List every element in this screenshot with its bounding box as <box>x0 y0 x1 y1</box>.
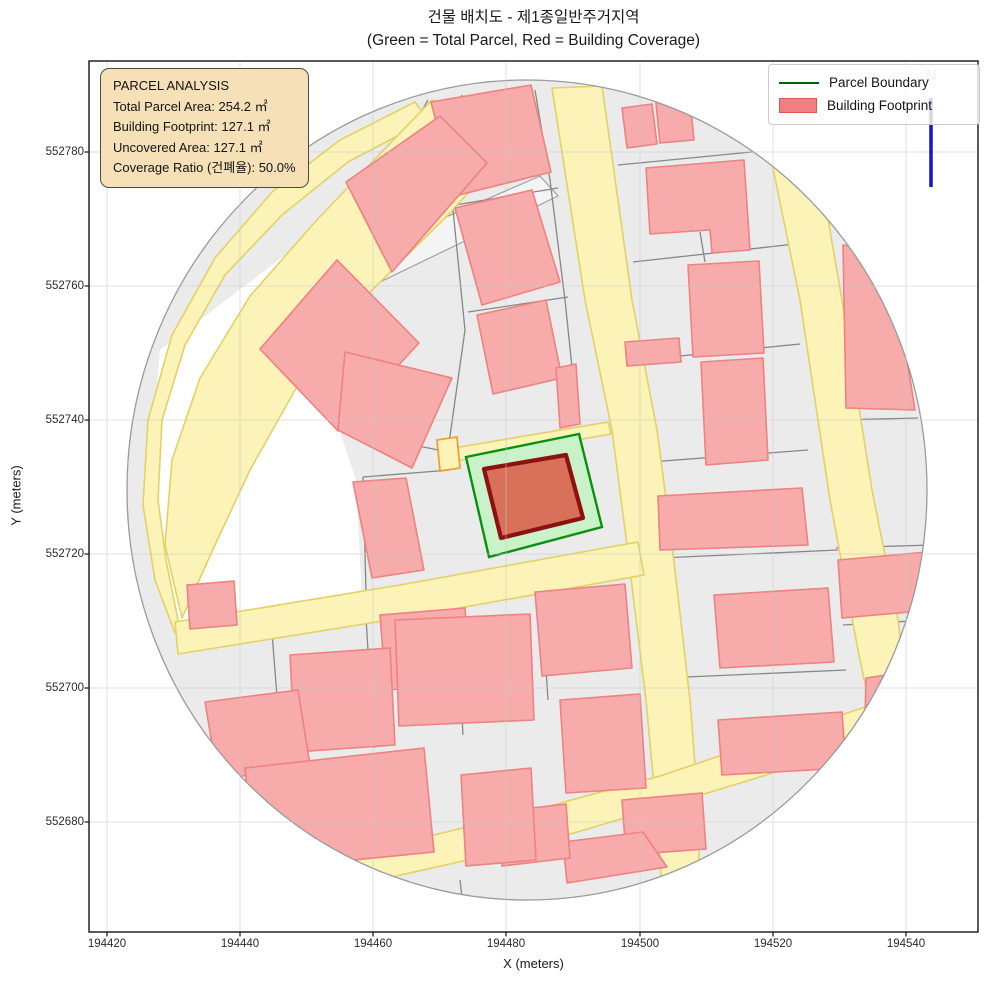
total-parcel-area: Total Parcel Area: 254.2 ㎡ <box>113 97 296 118</box>
x-tick-label: 194440 <box>221 938 259 950</box>
y-tick-label: 552680 <box>46 816 84 828</box>
x-tick-label: 194540 <box>887 938 925 950</box>
building-polygon <box>461 768 536 866</box>
road-stub <box>437 437 460 471</box>
y-tick-label: 552760 <box>46 280 84 292</box>
uncovered-area: Uncovered Area: 127.1 ㎡ <box>113 138 296 159</box>
y-tick-label: 552740 <box>46 414 84 426</box>
legend-item-building-footprint: Building Footprint <box>779 94 971 117</box>
building-polygon <box>625 338 681 366</box>
building-polygon <box>658 488 808 550</box>
parcel-boundary-line-swatch <box>779 82 819 84</box>
building-polygon <box>535 584 632 676</box>
chart-title-line2: (Green = Total Parcel, Red = Building Co… <box>89 29 978 52</box>
parcel-analysis-title: PARCEL ANALYSIS <box>113 76 296 97</box>
y-tick-label: 552720 <box>46 548 84 560</box>
legend-label: Parcel Boundary <box>829 75 929 90</box>
building-polygon <box>395 614 534 726</box>
building-polygon <box>688 261 764 357</box>
x-tick-label: 194460 <box>354 938 392 950</box>
building-polygon <box>701 358 768 465</box>
building-polygon <box>556 364 580 428</box>
building-polygon <box>187 581 237 629</box>
figure: N 건물 배치도 - 제1종일반주거지역 (Green = Total Parc… <box>0 0 986 990</box>
legend: Parcel Boundary Building Footprint <box>768 64 980 125</box>
building-footprint-patch-swatch <box>779 98 817 113</box>
building-polygon <box>477 300 562 394</box>
y-tick-label: 552700 <box>46 682 84 694</box>
y-tick-label: 552780 <box>46 146 84 158</box>
chart-title: 건물 배치도 - 제1종일반주거지역 (Green = Total Parcel… <box>89 6 978 52</box>
x-tick-label: 194480 <box>487 938 525 950</box>
building-polygon <box>714 588 834 668</box>
parcel-analysis-box: PARCEL ANALYSIS Total Parcel Area: 254.2… <box>100 68 309 188</box>
building-polygon <box>560 694 646 793</box>
x-axis-label: X (meters) <box>89 956 978 971</box>
x-tick-label: 194520 <box>754 938 792 950</box>
chart-title-line1: 건물 배치도 - 제1종일반주거지역 <box>89 6 978 29</box>
building-footprint-area: Building Footprint: 127.1 ㎡ <box>113 117 296 138</box>
x-tick-label: 194420 <box>88 938 126 950</box>
x-tick-label: 194500 <box>621 938 659 950</box>
y-axis-label: Y (meters) <box>9 446 24 546</box>
legend-item-parcel-boundary: Parcel Boundary <box>779 71 971 94</box>
coverage-ratio: Coverage Ratio (건폐율): 50.0% <box>113 158 296 179</box>
legend-label: Building Footprint <box>827 98 932 113</box>
